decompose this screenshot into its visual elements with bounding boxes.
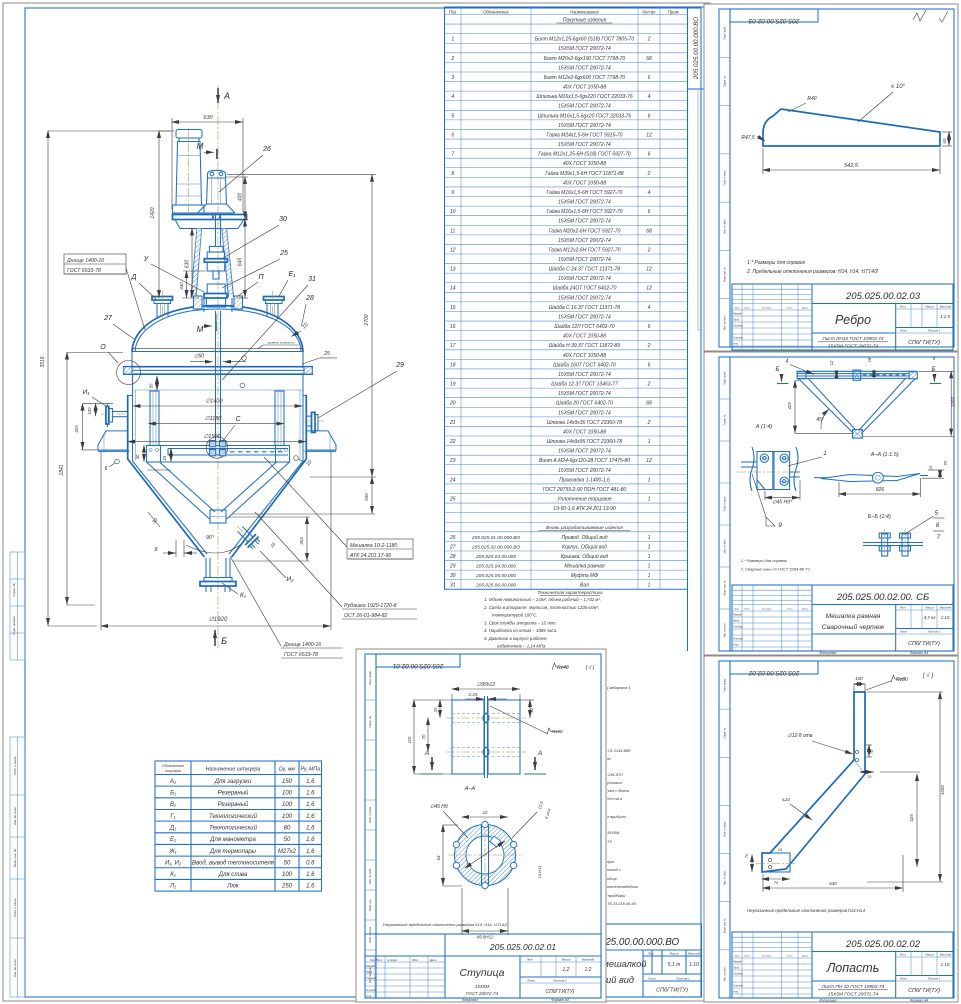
svg-text:Т.контр.: Т.контр. — [733, 325, 743, 328]
svg-text:50: 50 — [943, 460, 948, 465]
svg-text:Листов 1: Листов 1 — [927, 329, 941, 333]
svg-text:1: 1 — [648, 497, 651, 503]
svg-text:Мешалка рамная: Мешалка рамная — [564, 564, 605, 570]
svg-text:Листов 1: Листов 1 — [675, 977, 690, 981]
svg-text:Изм.: Изм. — [735, 955, 740, 957]
svg-text:31: 31 — [450, 583, 456, 589]
svg-text:∅45 Н9*: ∅45 Н9* — [772, 500, 793, 506]
svg-text:К₁: К₁ — [240, 592, 246, 599]
svg-text:Rz40: Rz40 — [557, 665, 569, 671]
svg-text:Масштаб: Масштаб — [940, 954, 952, 957]
svg-text:17: 17 — [450, 343, 456, 349]
svg-text:Т.контр.: Т.контр. — [733, 626, 743, 629]
svg-text:15Х5М ГОСТ 20072-74: 15Х5М ГОСТ 20072-74 — [558, 200, 611, 206]
svg-text:5,1 т: 5,1 т — [668, 962, 681, 968]
svg-text:Уплотнение торцовое: Уплотнение торцовое — [557, 497, 611, 503]
svg-text:2: 2 — [647, 382, 651, 388]
svg-text:100: 100 — [855, 676, 863, 681]
svg-text:Разраб.: Разраб. — [733, 313, 742, 316]
svg-text:40Х ГОСТ 1050-88: 40Х ГОСТ 1050-88 — [563, 85, 606, 91]
svg-text:22: 22 — [481, 810, 488, 815]
svg-text:2. Сварные швы по ГОСТ 5264-80: 2. Сварные швы по ГОСТ 5264-80-Т1 — [740, 567, 810, 572]
svg-text:И₂: И₂ — [286, 576, 294, 583]
svg-text:Лист: Лист — [899, 630, 908, 634]
svg-text:23: 23 — [449, 458, 456, 464]
svg-text:1: 1 — [648, 439, 651, 445]
svg-text:25: 25 — [323, 351, 330, 357]
svg-text:1: 1 — [648, 477, 651, 483]
svg-text:Формат А4: Формат А4 — [910, 999, 929, 1003]
svg-text:550: 550 — [364, 493, 369, 501]
svg-text:22: 22 — [529, 707, 534, 713]
svg-text:Технологический: Технологический — [209, 824, 258, 831]
svg-text:4. Наработка на отказ – 4385 ч: 4. Наработка на отказ – 4385 часа. — [484, 628, 557, 633]
svg-text:1,6: 1,6 — [306, 872, 315, 878]
svg-text:1060: 1060 — [951, 396, 956, 407]
svg-text:Пров.: Пров. — [733, 620, 740, 623]
svg-text:12: 12 — [829, 360, 834, 365]
svg-text:ТК 24.218.06-90.: ТК 24.218.06-90. — [607, 901, 637, 906]
svg-text:Л₁: Л₁ — [169, 884, 176, 890]
svg-text:1:1.5: 1:1.5 — [940, 314, 951, 319]
svg-text:70: 70 — [867, 774, 872, 779]
svg-text:СПбГТИ(ТУ): СПбГТИ(ТУ) — [546, 989, 575, 995]
svg-text:№ докум.: № докум. — [762, 607, 772, 610]
svg-text:4,7 кг: 4,7 кг — [924, 615, 937, 620]
svg-text:Rz80: Rz80 — [896, 677, 908, 683]
svg-text:∅45 Н9: ∅45 Н9 — [430, 804, 448, 810]
svg-text:15Х5М ГОСТ 20072-74: 15Х5М ГОСТ 20072-74 — [828, 344, 879, 350]
svg-text:Изм.: Изм. — [735, 608, 740, 610]
svg-text:Муфта МФ: Муфта МФ — [571, 573, 598, 579]
svg-text:А: А — [537, 750, 542, 757]
svg-text:Справ. №: Справ. № — [368, 716, 372, 728]
svg-text:31: 31 — [308, 276, 316, 283]
svg-text:Лит.: Лит. — [899, 953, 907, 957]
svg-text:15Х5М ГОСТ 20072-74: 15Х5М ГОСТ 20072-74 — [558, 314, 611, 320]
svg-text:Для загрузки: Для загрузки — [214, 779, 252, 785]
svg-text:1.* Размеры для справок: 1.* Размеры для справок — [741, 558, 788, 563]
svg-text:15Х5М: 15Х5М — [607, 830, 620, 835]
svg-text:№ докум.: № докум. — [387, 959, 398, 962]
svg-text:27: 27 — [449, 544, 456, 550]
svg-text:5: 5 — [451, 113, 454, 119]
svg-text:Корпус. Общий вид: Корпус. Общий вид — [562, 543, 607, 550]
svg-text:Шайба 24ОТ ГОСТ 6402-70: Шайба 24ОТ ГОСТ 6402-70 — [553, 285, 617, 292]
svg-text:нс: нс — [607, 756, 611, 761]
svg-text:Болт М12х2-6gх600 ГОСТ 7798-70: Болт М12х2-6gх600 ГОСТ 7798-70 — [544, 75, 626, 81]
svg-text:205.025.00.02.02: 205.025.00.02.02 — [845, 939, 921, 950]
svg-text:ТУ.: ТУ. — [607, 839, 613, 844]
svg-text:28: 28 — [449, 554, 456, 560]
svg-text:25: 25 — [449, 497, 456, 503]
svg-text:№ докум.: № докум. — [762, 954, 772, 957]
svg-text:40Х ГОСТ 1050-88: 40Х ГОСТ 1050-88 — [563, 334, 606, 340]
svg-text:Справ. №: Справ. № — [724, 76, 727, 87]
svg-text:40: 40 — [135, 454, 140, 459]
svg-text:Масштаб: Масштаб — [582, 958, 595, 962]
svg-text:1,6: 1,6 — [306, 884, 315, 890]
svg-text:ГОСТ 28759.2-90 ПОН ГОСТ 481-8: ГОСТ 28759.2-90 ПОН ГОСТ 481-80 — [543, 487, 627, 493]
svg-text:Усл.па и: Усл.па и — [607, 796, 623, 801]
svg-text:А₁: А₁ — [169, 779, 176, 785]
svg-text:2. Предельные отклонения разме: 2. Предельные отклонения размеров: Н14, … — [746, 269, 878, 275]
svg-text:Масса: Масса — [925, 953, 934, 957]
svg-text:Лопасть: Лопасть — [826, 961, 880, 975]
svg-text:6: 6 — [648, 152, 651, 158]
svg-text:Лист: Лист — [375, 959, 382, 962]
svg-text:40Х ГОСТ 1050-88: 40Х ГОСТ 1050-88 — [563, 161, 606, 167]
svg-text:100: 100 — [282, 872, 293, 878]
svg-text:22: 22 — [449, 439, 456, 445]
svg-text:205.025.04.00.000: 205.025.04.00.000 — [475, 564, 516, 570]
svg-text:630: 630 — [185, 260, 191, 269]
svg-text:Техническая характеристика: Техническая характеристика — [537, 590, 602, 595]
svg-text:штаб с: штаб с — [607, 867, 621, 872]
svg-text:1.* Размеры для справок: 1.* Размеры для справок — [747, 260, 806, 266]
svg-text:Подп.: Подп. — [787, 607, 793, 610]
svg-text:ГОСТ 6533-78: ГОСТ 6533-78 — [67, 268, 101, 274]
svg-text:Винт А.М24-6gх120-28 ГОСТ 1747: Винт А.М24-6gх120-28 ГОСТ 17475-80 — [539, 458, 630, 464]
svg-text:70: 70 — [869, 749, 874, 754]
svg-text:1: 1 — [648, 535, 651, 541]
svg-text:Гайка М20х2-6Н ГОСТ 5927-70: Гайка М20х2-6Н ГОСТ 5927-70 — [549, 227, 621, 234]
svg-text:СПбГТИ(ТУ): СПбГТИ(ТУ) — [908, 340, 940, 346]
svg-text:Лист ЛН10 ГОСТ 19903-74: Лист ЛН10 ГОСТ 19903-74 — [821, 336, 883, 342]
svg-text:температурой 100°С.: температурой 100°С. — [492, 613, 538, 618]
svg-text:1420: 1420 — [150, 207, 156, 218]
svg-text:И₁: И₁ — [83, 389, 90, 396]
svg-text:Взам. инв. №: Взам. инв. № — [724, 580, 727, 595]
svg-text:Инв. № дубл.: Инв. № дубл. — [724, 870, 727, 885]
svg-text:Гайка М39х1,5-6Н ГОСТ 11871-88: Гайка М39х1,5-6Н ГОСТ 11871-88 — [545, 170, 624, 177]
svg-text:205.025.03.00.000: 205.025.03.00.000 — [475, 554, 516, 560]
svg-text:Дата: Дата — [801, 608, 809, 610]
svg-text:2: 2 — [647, 37, 651, 43]
svg-text:1,6: 1,6 — [306, 849, 315, 855]
svg-text:205.025.00.02.02: 205.025.00.02.02 — [748, 669, 800, 676]
svg-text:Вновь разрабатываемые изделия: Вновь разрабатываемые изделия — [546, 525, 623, 531]
svg-text:Копировал: Копировал — [462, 998, 478, 1002]
svg-text:16: 16 — [450, 324, 456, 330]
svg-text:М: М — [197, 142, 204, 151]
svg-text:интенсопдоболь: интенсопдоболь — [607, 884, 638, 889]
svg-text:205.025.00.00.000.ВО: 205.025.00.00.000.ВО — [693, 17, 700, 80]
svg-text:А–А: А–А — [464, 786, 476, 792]
svg-text:Разраб.: Разраб. — [366, 964, 376, 968]
svg-text:50: 50 — [284, 837, 291, 843]
svg-text:Масса: Масса — [562, 958, 571, 962]
svg-text:10: 10 — [450, 209, 456, 215]
svg-text:1,6: 1,6 — [306, 802, 315, 808]
svg-text:Обозначение: Обозначение — [483, 10, 509, 15]
svg-text:Н.контр.: Н.контр. — [366, 988, 377, 992]
svg-text:Для манометра: Для манометра — [209, 837, 256, 843]
svg-text:Пров.: Пров. — [733, 967, 740, 970]
svg-text:1,6: 1,6 — [306, 814, 315, 820]
svg-text:1: 1 — [648, 544, 651, 550]
svg-text:15Х5М ГОСТ 20072-74: 15Х5М ГОСТ 20072-74 — [558, 238, 611, 244]
svg-text:7: 7 — [451, 152, 454, 158]
svg-text:15: 15 — [778, 847, 783, 852]
svg-text:100: 100 — [282, 814, 293, 820]
svg-text:Лит.: Лит. — [899, 606, 907, 610]
svg-text:Б: Б — [221, 636, 227, 646]
svg-text:Инв. № дубл.: Инв. № дубл. — [13, 807, 17, 826]
svg-text:Копировал: Копировал — [820, 999, 837, 1003]
svg-text:Масса: Масса — [925, 305, 934, 309]
svg-text:Шайба С 24.37 ГОСТ 11371-78: Шайба С 24.37 ГОСТ 11371-78 — [549, 266, 620, 273]
svg-text:Резервный: Резервный — [218, 789, 249, 796]
svg-text:45°: 45° — [816, 417, 824, 423]
svg-text:28: 28 — [305, 295, 314, 302]
svg-text:ГОСТ 20072-74: ГОСТ 20072-74 — [466, 991, 498, 996]
svg-text:Подп. и дата: Подп. и дата — [13, 756, 17, 775]
svg-text:Резервный: Резервный — [218, 801, 249, 808]
svg-text:4: 4 — [648, 190, 651, 196]
svg-text:Копировал: Копировал — [820, 651, 837, 655]
svg-text:3. Срок службы аппарата – 10 л: 3. Срок службы аппарата – 10 лет. — [484, 620, 557, 625]
svg-text:640: 640 — [829, 881, 837, 886]
svg-text:205.025.00.02.00. СБ: 205.025.00.02.00. СБ — [836, 592, 929, 603]
svg-text:12: 12 — [450, 247, 456, 253]
svg-text:∅12 8 отв: ∅12 8 отв — [787, 733, 812, 739]
svg-text:Лист: Лист — [743, 307, 750, 309]
svg-text:15Х5М ГОСТ 20072-74: 15Х5М ГОСТ 20072-74 — [558, 219, 611, 225]
svg-text:6: 6 — [648, 209, 651, 215]
svg-text:Г₁: Г₁ — [170, 814, 175, 820]
svg-text:Привод. Общий вид: Привод. Общий вид — [561, 534, 607, 541]
svg-text:Инв. № подл.: Инв. № подл. — [724, 622, 727, 637]
svg-text:М27х2: М27х2 — [278, 849, 297, 855]
svg-text:Подп. и дата: Подп. и дата — [368, 926, 372, 943]
svg-text:Листов 1: Листов 1 — [927, 977, 941, 981]
svg-text:Лист: Лист — [743, 955, 750, 957]
svg-text:Ж₁: Ж₁ — [168, 849, 177, 855]
svg-text:21: 21 — [449, 420, 456, 426]
svg-text:Лит.: Лит. — [899, 305, 907, 309]
svg-text:12: 12 — [646, 286, 652, 292]
svg-text:205.025.00.02.03: 205.025.00.02.03 — [845, 291, 921, 302]
svg-text:Дата: Дата — [801, 955, 809, 957]
svg-text:50: 50 — [149, 383, 154, 388]
svg-text:15Х5М ГОСТ 20072-74: 15Х5М ГОСТ 20072-74 — [558, 391, 611, 397]
svg-text:Прим.: Прим. — [668, 10, 680, 15]
svg-text:29: 29 — [449, 564, 456, 570]
svg-text:2. Среда в аппарате: эмульсия,: 2. Среда в аппарате: эмульсия, плотность… — [483, 605, 599, 610]
svg-text:з прибыли: з прибыли — [606, 814, 627, 819]
svg-text:15Х5М ГОСТ 20072-74: 15Х5М ГОСТ 20072-74 — [558, 65, 611, 71]
svg-text:1,6: 1,6 — [306, 779, 315, 785]
svg-text:205.025.01.00.000.ВО: 205.025.01.00.000.ВО — [471, 535, 520, 541]
svg-text:12: 12 — [646, 132, 652, 138]
svg-text:Д₁: Д₁ — [169, 825, 176, 831]
svg-text:Ступица: Ступица — [460, 967, 505, 979]
svg-text:15Х5М ГОСТ 20072-74: 15Х5М ГОСТ 20072-74 — [558, 276, 611, 282]
svg-text:205.025.05.00.000: 205.025.05.00.000 — [475, 573, 516, 579]
svg-text:Б–Б (1:4): Б–Б (1:4) — [868, 514, 891, 520]
svg-text:Масса: Масса — [670, 952, 679, 956]
svg-text:избыточное – 1,14 МПа: избыточное – 1,14 МПа — [497, 644, 546, 649]
svg-text:15Х5М ГОСТ 20072-74: 15Х5М ГОСТ 20072-74 — [558, 123, 611, 129]
svg-text:Перв. прим.: Перв. прим. — [724, 371, 727, 385]
svg-text:В₁: В₁ — [170, 802, 176, 808]
svg-text:100: 100 — [282, 790, 293, 796]
svg-text:Н.контр.: Н.контр. — [733, 638, 744, 641]
svg-text:( √ ): ( √ ) — [923, 672, 934, 679]
svg-text:Формат А4: Формат А4 — [551, 998, 569, 1002]
svg-text:Кол-во: Кол-во — [643, 10, 657, 15]
svg-text:6: 6 — [648, 75, 651, 81]
svg-text:Шпонка 14х9х95 ГОСТ 23360-78: Шпонка 14х9х95 ГОСТ 23360-78 — [547, 439, 622, 445]
svg-text:19: 19 — [450, 382, 456, 388]
svg-text:100: 100 — [282, 802, 293, 808]
svg-text:≤10: ≤10 — [782, 797, 790, 802]
svg-text:Справ. №: Справ. № — [724, 414, 727, 425]
svg-text:15Х5М ГОСТ 20072-74: 15Х5М ГОСТ 20072-74 — [558, 46, 611, 52]
svg-text:205.025.00.02.01: 205.025.00.02.01 — [489, 942, 556, 952]
svg-text:уровень жидкости: уровень жидкости — [266, 341, 294, 345]
svg-text:205.025.06.00.000: 205.025.06.00.000 — [475, 583, 516, 589]
svg-text:24: 24 — [449, 477, 456, 483]
svg-text:Инв. № подл.: Инв. № подл. — [724, 966, 727, 981]
svg-text:15Х5М ГОСТ 20072-74: 15Х5М ГОСТ 20072-74 — [558, 372, 611, 378]
svg-text:Справ. №: Справ. № — [12, 582, 16, 596]
svg-text:Болт М20х2-6gх190 ГОСТ 7798-70: Болт М20х2-6gх190 ГОСТ 7798-70 — [544, 56, 626, 62]
svg-text:Неуказанные предельные отклоне: Неуказанные предельные отклонения размер… — [747, 908, 865, 913]
svg-text:70: 70 — [774, 880, 779, 885]
svg-text:( √ ): ( √ ) — [586, 664, 595, 671]
svg-text:4: 4 — [451, 94, 454, 100]
svg-text:Б: Б — [932, 367, 936, 373]
svg-text:Взам. инв.: Взам. инв. — [368, 898, 372, 911]
svg-text:8: 8 — [451, 171, 454, 177]
svg-text:18: 18 — [450, 362, 456, 368]
svg-text:М: М — [197, 325, 204, 334]
svg-text:40Х ГОСТ 1050-88: 40Х ГОСТ 1050-88 — [563, 429, 606, 435]
svg-text:R47,5: R47,5 — [741, 135, 755, 141]
svg-text:Назначение штуцера: Назначение штуцера — [206, 767, 261, 773]
svg-text:Разраб.: Разраб. — [733, 961, 742, 964]
svg-text:Масштаб: Масштаб — [940, 306, 952, 309]
svg-text:68: 68 — [646, 401, 652, 407]
svg-text:Вал: Вал — [580, 583, 589, 589]
svg-text:Взам. инв. №: Взам. инв. № — [724, 267, 727, 282]
svg-text:Инв. № дубл.: Инв. № дубл. — [724, 219, 727, 234]
svg-text:15Х5М ГОСТ 20072-74: 15Х5М ГОСТ 20072-74 — [558, 468, 611, 474]
svg-text:Изм.: Изм. — [370, 959, 375, 962]
svg-text:Днище 1400-16: Днище 1400-16 — [283, 642, 321, 648]
svg-text:Б₁: Б₁ — [170, 790, 176, 796]
svg-text:1: 1 — [648, 554, 651, 560]
svg-text:6: 6 — [105, 466, 108, 472]
svg-text:Шайба 12.37 ГОСТ 13463-77: Шайба 12.37 ГОСТ 13463-77 — [551, 381, 618, 388]
svg-text:Гайка М12х1,25-6Н (S18) ГОСТ 5: Гайка М12х1,25-6Н (S18) ГОСТ 5927-70 — [538, 151, 631, 158]
svg-text:15Х5М ГОСТ 20072-74: 15Х5М ГОСТ 20072-74 — [558, 410, 611, 416]
svg-text:∅50: ∅50 — [194, 354, 204, 360]
svg-text:6: 6 — [648, 324, 651, 330]
svg-text:Масса: Масса — [925, 606, 934, 610]
svg-text:Н.контр.: Н.контр. — [733, 337, 744, 340]
svg-text:68: 68 — [646, 56, 652, 62]
svg-text:Пров.: Пров. — [733, 319, 740, 322]
svg-text:645: 645 — [238, 258, 244, 267]
svg-text:15Х5М ГОСТ 20072-74: 15Х5М ГОСТ 20072-74 — [558, 142, 611, 148]
svg-text:R40: R40 — [807, 96, 816, 102]
svg-text:Е₁: Е₁ — [170, 837, 176, 843]
svg-text:Разраб.: Разраб. — [733, 614, 742, 617]
svg-text:3: 3 — [451, 75, 454, 81]
svg-text:К₁: К₁ — [170, 872, 176, 878]
svg-text:Технологический: Технологический — [209, 813, 258, 820]
svg-text:20: 20 — [433, 707, 438, 713]
svg-text:Утв.: Утв. — [733, 343, 739, 346]
svg-text:Лист: Лист — [526, 979, 535, 983]
svg-text:Подп. и дата: Подп. и дата — [368, 806, 372, 823]
svg-text:Крышка. Общий вид: Крышка. Общий вид — [561, 553, 609, 560]
svg-text:СПбГТИ(ТУ): СПбГТИ(ТУ) — [656, 988, 688, 994]
svg-text:30: 30 — [279, 216, 287, 223]
svg-text:205.025.02.00.000.ВО: 205.025.02.00.000.ВО — [471, 544, 520, 550]
svg-text:Гайка М16х1,5-6Н ГОСТ 5927-70: Гайка М16х1,5-6Н ГОСТ 5927-70 — [547, 208, 623, 215]
svg-text:Инв. № подл.: Инв. № подл. — [13, 959, 17, 978]
svg-text:13-50-1,6 АТК 24.201.13-90: 13-50-1,6 АТК 24.201.13-90 — [553, 506, 616, 512]
svg-text:6: 6 — [648, 113, 651, 119]
svg-text:Шайба С 16.37 ГОСТ 11371-78: Шайба С 16.37 ГОСТ 11371-78 — [549, 304, 620, 311]
svg-text:Шайба Н 39.37 ГОСТ 11872-89: Шайба Н 39.37 ГОСТ 11872-89 — [549, 342, 620, 349]
svg-text:Неуказанные предельные отклоне: Неуказанные предельные отклонения размер… — [383, 922, 508, 927]
svg-text:Пров.: Пров. — [366, 970, 373, 974]
svg-text:Лит.: Лит. — [525, 958, 533, 962]
svg-text:1,6: 1,6 — [306, 825, 315, 831]
svg-text:205.025.00.02.01: 205.025.00.02.01 — [392, 662, 444, 669]
svg-text:Шпонка 14х9х36 ГОСТ 23360-78: Шпонка 14х9х36 ГОСТ 23360-78 — [547, 420, 622, 426]
svg-text:49,9Н12: 49,9Н12 — [476, 935, 494, 940]
svg-text:'продбазы': 'продбазы' — [607, 893, 626, 898]
svg-text:Шпилька М16х1,5-6gх220 ГОСТ 22: Шпилька М16х1,5-6gх220 ГОСТ 22033-76 — [536, 94, 632, 100]
svg-text:14: 14 — [450, 286, 456, 292]
svg-text:542,5: 542,5 — [844, 163, 859, 169]
svg-text:826: 826 — [876, 487, 885, 493]
svg-text:15Х5М ГОСТ 20072-74: 15Х5М ГОСТ 20072-74 — [558, 257, 611, 263]
svg-text:Инв. № подл.: Инв. № подл. — [368, 967, 372, 983]
svg-text:90°: 90° — [206, 535, 215, 541]
svg-text:Для термопары: Для термопары — [209, 849, 257, 855]
svg-text:Гайка М24х1,5-6Н ГОСТ 5915-70: Гайка М24х1,5-6Н ГОСТ 5915-70 — [547, 131, 623, 138]
svg-text:Утв.: Утв. — [366, 994, 372, 998]
svg-text:15Х5М ГОСТ 20072-74: 15Х5М ГОСТ 20072-74 — [558, 104, 611, 110]
svg-text:2: 2 — [647, 343, 651, 349]
svg-text:2700: 2700 — [364, 314, 370, 326]
svg-text:Утв.: Утв. — [733, 991, 739, 994]
svg-text:условия': условия' — [606, 780, 623, 785]
svg-text:9: 9 — [778, 522, 782, 529]
svg-text:-01-1244-88Е: -01-1244-88Е — [607, 748, 631, 753]
svg-text:65: 65 — [942, 138, 947, 144]
svg-text:Подп. и дата: Подп. и дата — [724, 496, 727, 512]
svg-text:13: 13 — [450, 267, 456, 273]
svg-text:Перв. прим.: Перв. прим. — [368, 671, 372, 686]
svg-text:Подп. и дата: Подп. и дата — [724, 821, 727, 837]
svg-text:Ребро: Ребро — [835, 313, 871, 327]
svg-text:ГОСТ 6533-78: ГОСТ 6533-78 — [284, 652, 318, 658]
svg-text:150: 150 — [282, 779, 293, 785]
svg-text:120: 120 — [87, 407, 92, 415]
svg-text:15: 15 — [450, 305, 456, 311]
svg-text:штуцера: штуцера — [165, 769, 181, 773]
svg-text:12: 12 — [646, 458, 652, 464]
svg-text:30: 30 — [450, 573, 456, 579]
